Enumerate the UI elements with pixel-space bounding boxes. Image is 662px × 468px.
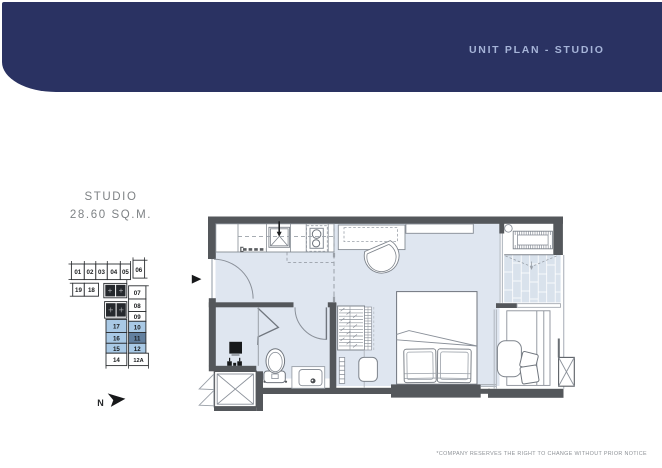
- svg-text:02: 02: [87, 269, 94, 276]
- svg-text:11: 11: [134, 336, 141, 343]
- svg-text:19: 19: [75, 287, 82, 294]
- svg-text:15: 15: [113, 346, 120, 353]
- svg-text:17: 17: [113, 324, 120, 331]
- svg-text:01: 01: [74, 269, 81, 276]
- svg-text:N: N: [97, 398, 104, 408]
- svg-text:03: 03: [98, 269, 105, 276]
- svg-text:16: 16: [113, 336, 120, 343]
- svg-text:08: 08: [134, 303, 141, 310]
- svg-text:09: 09: [134, 314, 141, 321]
- svg-text:10: 10: [134, 325, 141, 332]
- svg-text:12A: 12A: [133, 358, 143, 364]
- svg-text:05: 05: [122, 269, 129, 276]
- svg-text:04: 04: [110, 269, 117, 276]
- svg-text:07: 07: [134, 290, 141, 297]
- svg-text:12: 12: [134, 346, 141, 353]
- svg-text:18: 18: [88, 287, 95, 294]
- svg-text:14: 14: [113, 357, 120, 364]
- svg-text:06: 06: [135, 267, 142, 274]
